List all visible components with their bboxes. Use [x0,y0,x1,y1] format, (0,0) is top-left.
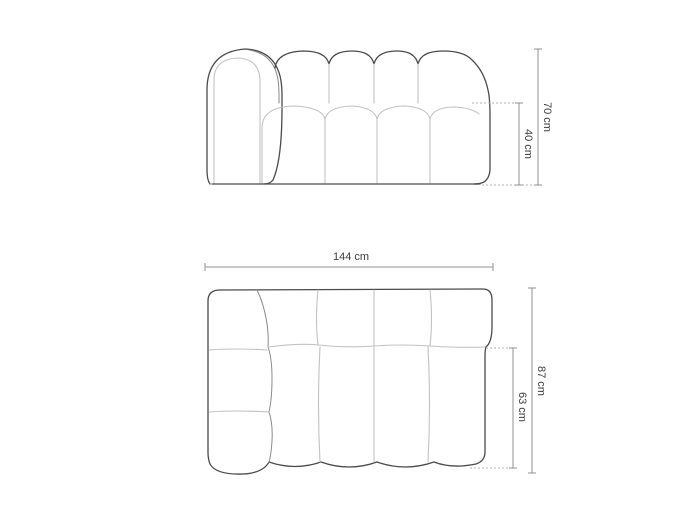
dim-label-seat-height: 40 cm [521,124,535,164]
total-width-dimension-line [205,263,493,271]
seat-cushions-outline [262,106,479,183]
plan-outline [208,289,492,474]
back-cushion-seams [329,64,418,103]
top-plan-dimension-lines [205,263,536,473]
plan-armrest-dividers [209,349,269,412]
dim-label-total-width: 144 cm [321,250,381,264]
back-cushions-outline [275,51,490,184]
dim-label-total-depth: 87 cm [534,361,548,401]
diagram-canvas: 70 cm 40 cm 144 cm 87 cm 63 cm [0,0,700,525]
plan-armrest-edge [257,290,272,462]
seat-cushion-seams [325,119,430,183]
plan-seat-dividers [319,347,430,462]
armrest-outline [207,49,282,184]
armrest-rear-edge-line [249,50,279,103]
armrest-inner-line [214,58,260,183]
dim-label-total-height: 70 cm [540,97,554,137]
front-elevation-dimension-lines [472,49,542,185]
dim-label-seat-depth: 63 cm [515,387,529,427]
plan-back-dividers [317,290,432,346]
plan-back-seam [268,344,485,347]
top-plan-view [208,289,492,474]
front-elevation-view [207,49,490,184]
